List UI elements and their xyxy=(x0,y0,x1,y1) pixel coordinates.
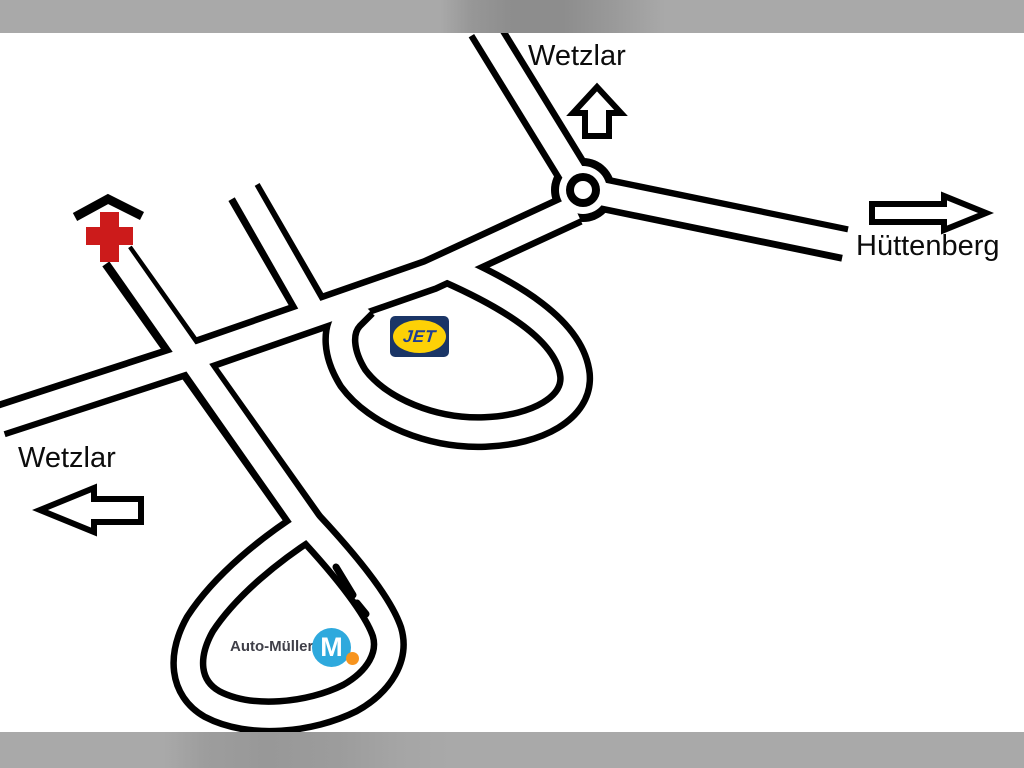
jet-logo-text: JET xyxy=(402,327,437,347)
auto-mueller-dot-icon xyxy=(346,652,359,665)
label-huettenberg-east: Hüttenberg xyxy=(856,230,1000,263)
road-network xyxy=(0,0,1024,768)
jet-logo-ellipse: JET xyxy=(393,320,446,353)
auto-mueller-monogram: M xyxy=(312,628,351,667)
label-wetzlar-north: Wetzlar xyxy=(528,40,626,73)
jet-station-logo: JET xyxy=(390,316,449,357)
left-arrow-icon xyxy=(40,488,141,532)
bottom-border-band xyxy=(0,732,1024,768)
map-canvas: Wetzlar Hüttenberg Wetzlar JET Auto-Müll… xyxy=(0,0,1024,768)
road-fills xyxy=(0,20,852,716)
label-wetzlar-west: Wetzlar xyxy=(18,442,116,475)
up-arrow-icon xyxy=(573,87,621,136)
auto-mueller-label: Auto-Müller xyxy=(230,638,313,655)
top-border-band xyxy=(0,0,1024,33)
roundabout-island-center xyxy=(574,181,592,199)
right-arrow-icon xyxy=(872,196,986,230)
